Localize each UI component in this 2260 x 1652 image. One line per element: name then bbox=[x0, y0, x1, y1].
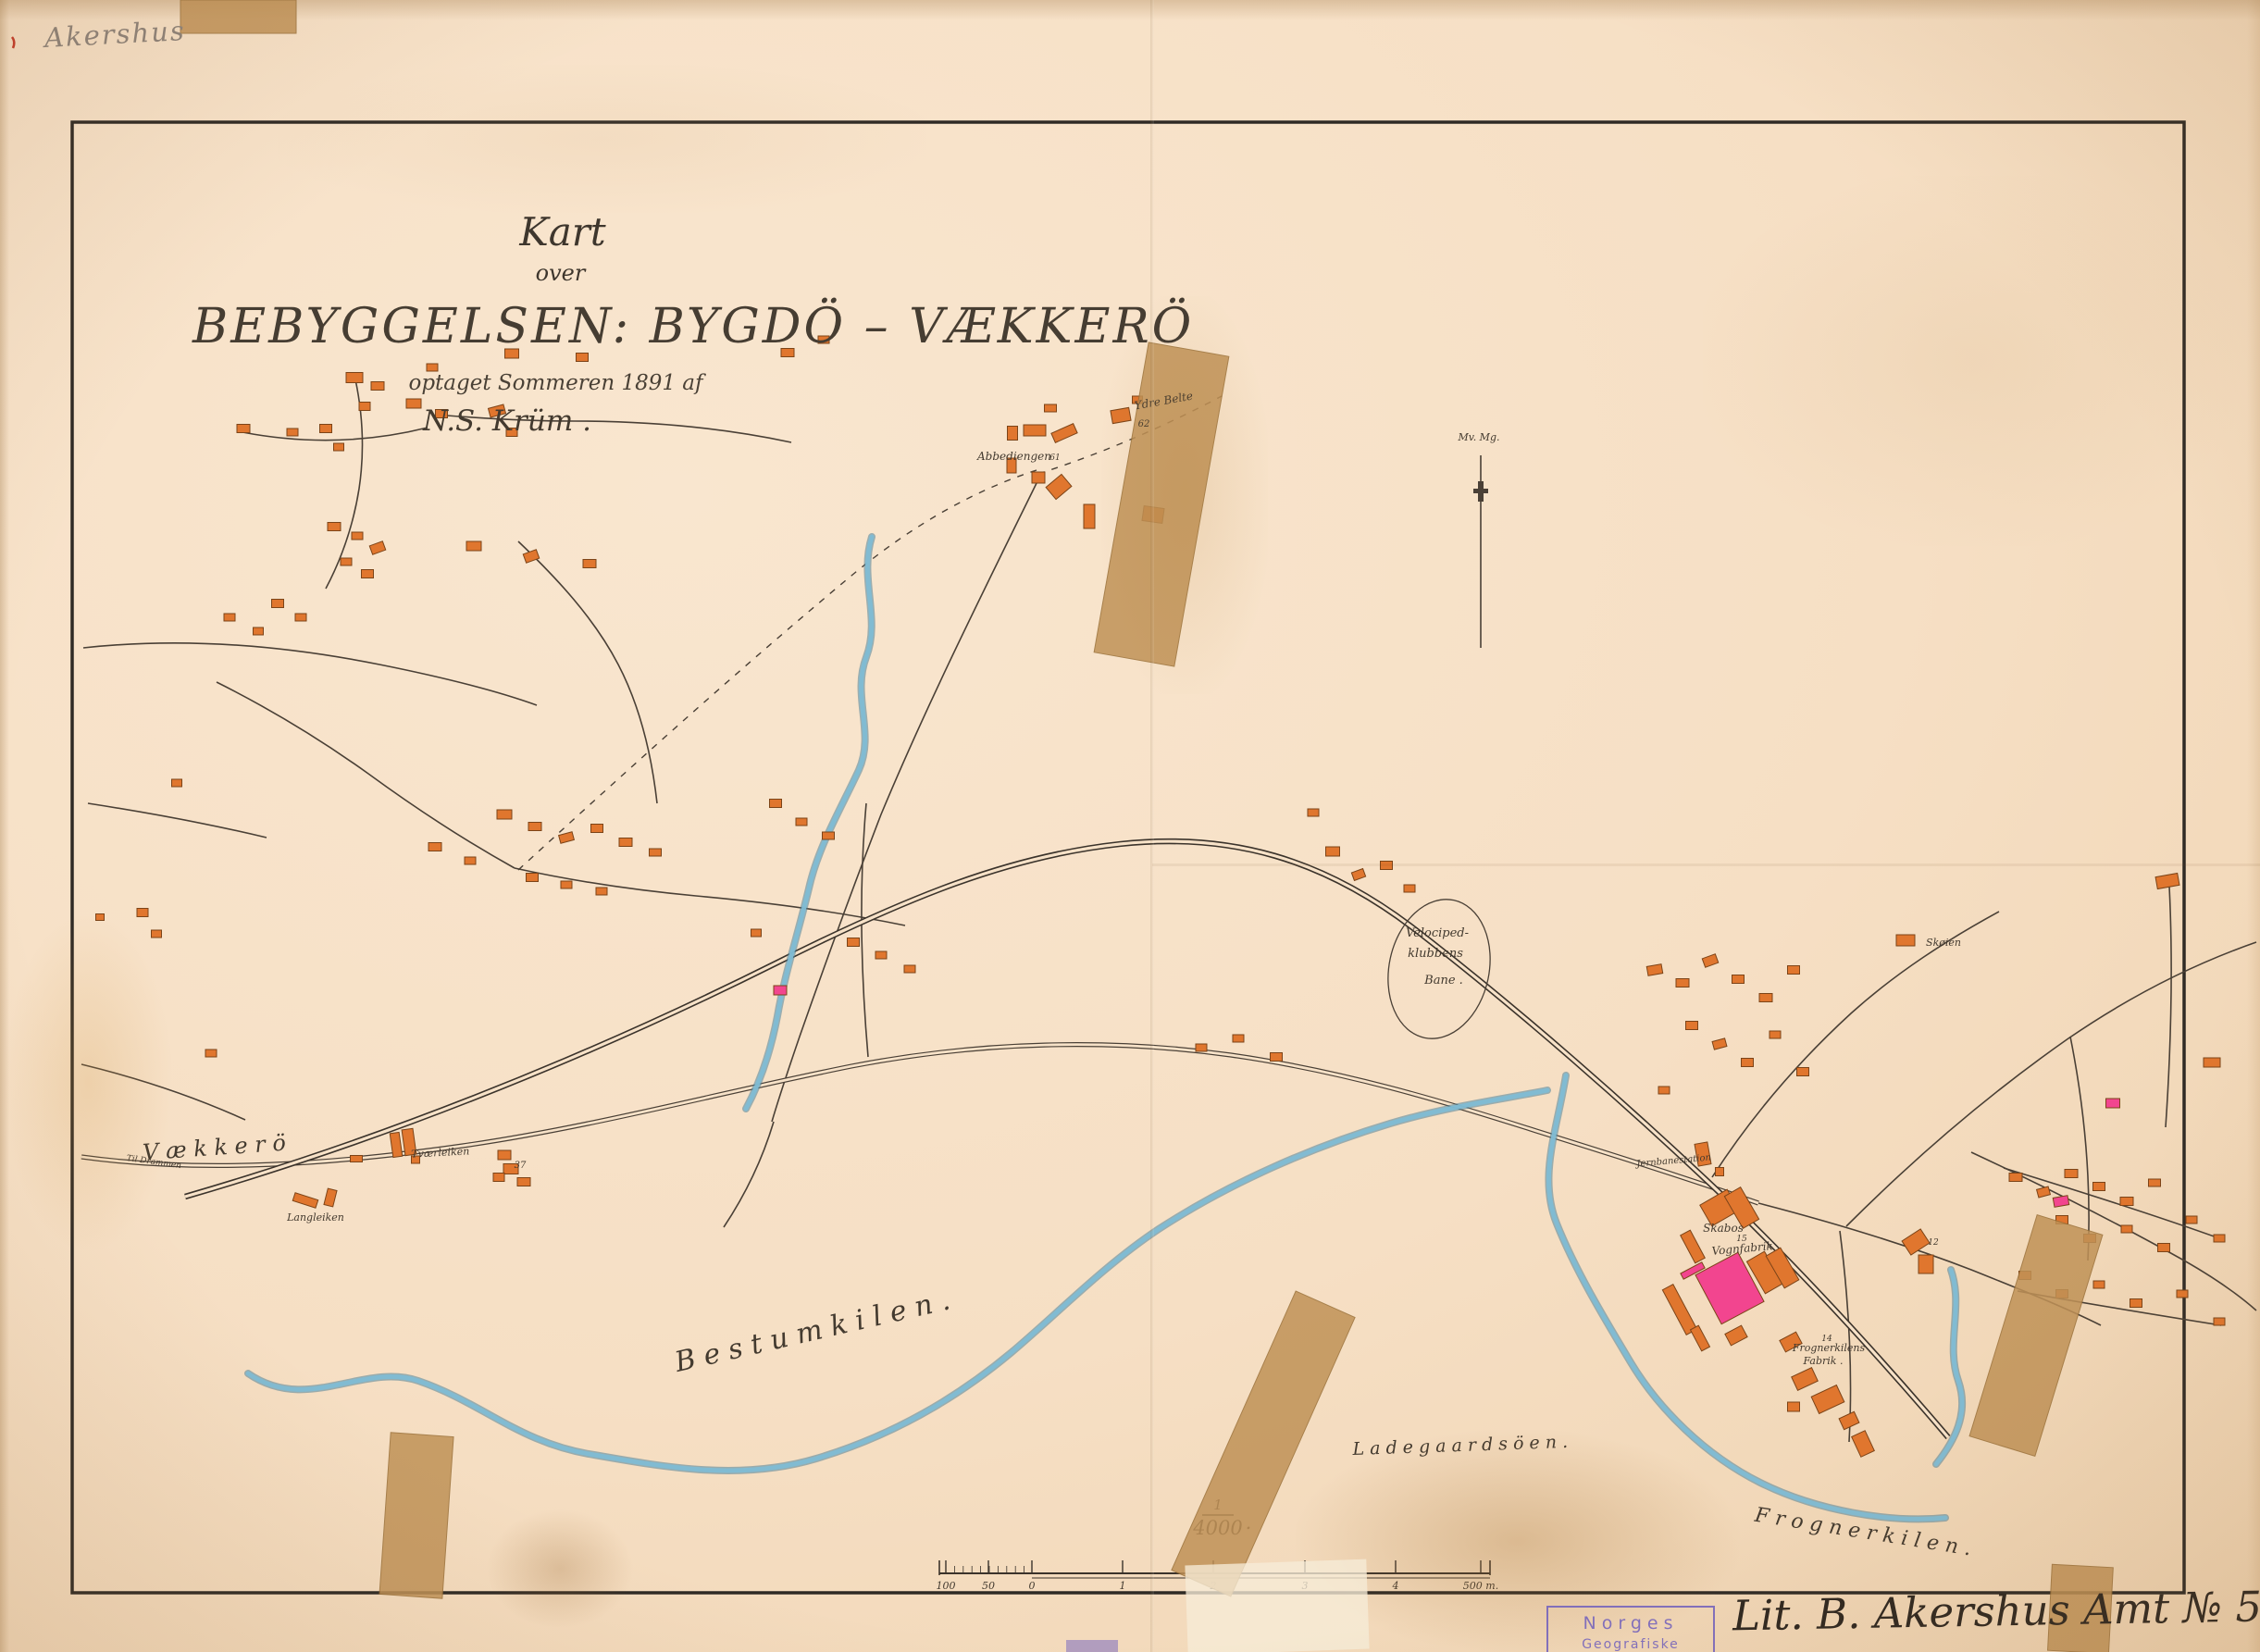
building bbox=[2186, 1216, 2197, 1223]
building bbox=[1788, 1402, 1800, 1411]
building bbox=[561, 881, 572, 888]
road bbox=[772, 479, 1038, 1122]
title-block: Kart over BEBYGGELSEN: BYGDÖ – VÆKKERÖ o… bbox=[211, 209, 859, 438]
building bbox=[1233, 1035, 1244, 1042]
building bbox=[362, 570, 374, 578]
road bbox=[81, 1064, 245, 1120]
water-layer bbox=[248, 537, 1962, 1519]
building bbox=[596, 888, 607, 895]
map-labels-layer: V æ k k e r öB e s t u m k i l e n .L a … bbox=[126, 390, 1973, 1561]
building bbox=[224, 614, 235, 621]
building bbox=[2214, 1235, 2225, 1242]
building bbox=[295, 614, 306, 621]
building bbox=[1381, 862, 1393, 870]
map-label-parcel-37: 37 bbox=[515, 1161, 527, 1171]
building bbox=[497, 810, 512, 819]
map-sheet: 1 4000 . 1005001234500 m. V æ k k e r öB… bbox=[0, 0, 2260, 1652]
dashed-path bbox=[518, 470, 1037, 870]
building bbox=[324, 1188, 337, 1207]
scale-tick-label: 4 bbox=[1392, 1580, 1399, 1592]
map-label-langleiken: Langleiken bbox=[286, 1211, 344, 1223]
building bbox=[1676, 979, 1689, 987]
building bbox=[466, 541, 481, 551]
map-label-velociped-line3: Bane . bbox=[1423, 974, 1463, 987]
building bbox=[205, 1050, 217, 1057]
title-author: N.S. Krüm . bbox=[155, 404, 859, 438]
meridian-crossbar bbox=[1478, 481, 1484, 502]
building bbox=[369, 541, 386, 555]
map-label-fabrik: Fabrik . bbox=[1803, 1355, 1844, 1367]
building bbox=[334, 443, 344, 451]
building bbox=[1326, 847, 1340, 856]
building bbox=[1046, 474, 1072, 499]
title-over: over bbox=[262, 260, 859, 286]
building bbox=[2093, 1281, 2105, 1288]
building bbox=[1051, 424, 1077, 443]
title-kart: Kart bbox=[267, 209, 859, 255]
building bbox=[2009, 1174, 2022, 1182]
building-pink bbox=[774, 986, 787, 995]
building bbox=[465, 857, 476, 864]
building bbox=[591, 825, 603, 833]
building bbox=[1839, 1411, 1859, 1429]
map-label-meridian-label: Mv. Mg. bbox=[1458, 431, 1500, 443]
building bbox=[428, 843, 441, 851]
map-label-bestumkilen: B e s t u m k i l e n . bbox=[671, 1285, 953, 1380]
tape-strip-bottom-left bbox=[379, 1433, 453, 1598]
building bbox=[1732, 975, 1745, 984]
building bbox=[1351, 869, 1365, 881]
building bbox=[2093, 1183, 2105, 1191]
stamp-fragment bbox=[1066, 1640, 1118, 1652]
tape-strip-top-edge bbox=[180, 0, 296, 33]
railway-line-outer bbox=[185, 841, 1948, 1437]
building bbox=[1404, 885, 1415, 892]
building bbox=[152, 930, 162, 938]
road bbox=[515, 868, 905, 925]
building bbox=[1084, 504, 1095, 528]
building bbox=[1024, 425, 1046, 436]
railway-line-inner bbox=[185, 841, 1948, 1437]
red-tick-mark bbox=[12, 37, 14, 48]
building bbox=[2120, 1198, 2133, 1206]
tape-strip-bottom-center bbox=[1172, 1291, 1355, 1596]
building bbox=[1196, 1044, 1207, 1051]
building bbox=[770, 800, 782, 808]
tape-strip-top bbox=[1094, 342, 1229, 666]
norges-stamp: Norges Geografiske Opmaaling bbox=[1546, 1606, 1715, 1652]
building bbox=[823, 832, 835, 839]
scale-tick-label: 3 bbox=[1302, 1580, 1309, 1592]
building bbox=[1742, 1059, 1754, 1067]
building bbox=[352, 532, 363, 540]
scale-tick-label: 1 bbox=[1120, 1580, 1126, 1592]
map-label-fabrik-parcel: 14 bbox=[1821, 1335, 1832, 1344]
road bbox=[1840, 1231, 1851, 1442]
road bbox=[1712, 912, 1999, 1177]
building bbox=[875, 951, 887, 959]
building bbox=[1725, 1325, 1747, 1346]
scale-tick-label: 0 bbox=[1029, 1580, 1036, 1592]
building bbox=[751, 929, 762, 937]
stamp-line1: Norges bbox=[1548, 1613, 1713, 1633]
scale-tick-label: 50 bbox=[982, 1580, 995, 1592]
map-label-ydre-belte-parcel: 62 bbox=[1138, 419, 1150, 429]
building bbox=[2037, 1186, 2051, 1198]
building bbox=[1712, 1038, 1727, 1050]
scale-tick-label: 100 bbox=[937, 1580, 956, 1592]
drammensveien-road-outer bbox=[81, 1045, 1758, 1203]
building bbox=[351, 1156, 363, 1162]
map-label-velociped-line1: Velociped- bbox=[1406, 926, 1469, 940]
building bbox=[1681, 1230, 1706, 1263]
map-label-velociped-line2: klubbens bbox=[1408, 947, 1463, 961]
title-main: BEBYGGELSEN: BYGDÖ – VÆKKERÖ bbox=[192, 299, 859, 354]
building bbox=[1111, 407, 1131, 423]
building bbox=[2149, 1179, 2161, 1186]
stream bbox=[746, 537, 872, 1109]
road bbox=[217, 682, 515, 868]
building bbox=[2155, 874, 2179, 889]
building bbox=[328, 523, 341, 531]
building bbox=[1759, 994, 1772, 1002]
building bbox=[2158, 1244, 2170, 1252]
building bbox=[1792, 1368, 1819, 1391]
building bbox=[523, 550, 540, 564]
building bbox=[341, 558, 352, 565]
building bbox=[1902, 1229, 1930, 1255]
tape-strip-right bbox=[1969, 1215, 2103, 1457]
archival-signature: Lit. B. Akershus Amt № 55. bbox=[1732, 1582, 2260, 1641]
scale-tick-label: 500 m. bbox=[1463, 1580, 1498, 1592]
building-pink bbox=[2106, 1099, 2120, 1108]
building bbox=[254, 627, 264, 635]
north-meridian bbox=[1473, 455, 1488, 648]
map-label-skoien: Skøien bbox=[1926, 937, 1961, 949]
map-label-jernbanestation: Jernbanestation bbox=[1634, 1153, 1711, 1170]
building bbox=[2204, 1058, 2220, 1067]
building bbox=[2065, 1170, 2078, 1178]
map-label-skabos: Skabos bbox=[1703, 1222, 1744, 1235]
road bbox=[724, 1122, 774, 1227]
building bbox=[493, 1174, 504, 1182]
building bbox=[1788, 966, 1800, 975]
building bbox=[1032, 472, 1045, 483]
building bbox=[517, 1178, 530, 1186]
building bbox=[1919, 1255, 1933, 1273]
building bbox=[2177, 1290, 2188, 1298]
building bbox=[1271, 1053, 1283, 1062]
map-label-parcel-12: 12 bbox=[1928, 1238, 1939, 1248]
road bbox=[862, 803, 868, 1057]
building bbox=[2130, 1299, 2142, 1308]
building bbox=[1686, 1022, 1698, 1030]
map-label-abbediengen: Abbediengen bbox=[976, 450, 1051, 463]
title-subtitle: optaget Sommeren 1891 af bbox=[253, 371, 859, 395]
building bbox=[528, 823, 541, 831]
road bbox=[1846, 942, 2256, 1226]
building bbox=[1646, 964, 1662, 976]
building bbox=[583, 560, 596, 568]
road bbox=[83, 643, 537, 705]
building bbox=[1811, 1385, 1844, 1414]
building bbox=[498, 1150, 511, 1160]
building bbox=[292, 1193, 318, 1209]
building bbox=[1662, 1285, 1696, 1335]
building bbox=[1770, 1031, 1781, 1038]
building bbox=[1690, 1325, 1709, 1351]
building bbox=[619, 838, 632, 847]
building bbox=[527, 874, 539, 882]
building bbox=[559, 832, 575, 844]
building-pink bbox=[2053, 1196, 2068, 1208]
building bbox=[1896, 935, 1915, 946]
building bbox=[1008, 427, 1018, 441]
building bbox=[650, 849, 662, 856]
map-label-abbediengen-parcel: 61 bbox=[1049, 453, 1060, 463]
building bbox=[272, 600, 284, 608]
building bbox=[848, 938, 860, 947]
building bbox=[1852, 1431, 1875, 1458]
building bbox=[1658, 1087, 1670, 1094]
road bbox=[2166, 887, 2171, 1127]
building bbox=[796, 818, 807, 826]
building bbox=[172, 779, 182, 787]
building bbox=[1045, 404, 1057, 412]
building bbox=[2214, 1318, 2225, 1325]
stamp-line2: Geografiske Opmaaling bbox=[1548, 1637, 1713, 1652]
building bbox=[1797, 1068, 1809, 1076]
road bbox=[518, 541, 657, 803]
building bbox=[904, 965, 915, 973]
building bbox=[137, 909, 148, 917]
building bbox=[1702, 954, 1719, 968]
map-label-ladegaardsoen: L a d e g a a r d s ö e n . bbox=[1351, 1432, 1568, 1459]
road bbox=[88, 803, 267, 838]
building bbox=[1716, 1168, 1724, 1176]
map-label-tvaerleiken: Tværleiken bbox=[411, 1145, 470, 1160]
building bbox=[1308, 809, 1319, 816]
building bbox=[2121, 1225, 2132, 1233]
building bbox=[96, 914, 105, 921]
stream bbox=[746, 537, 872, 1109]
